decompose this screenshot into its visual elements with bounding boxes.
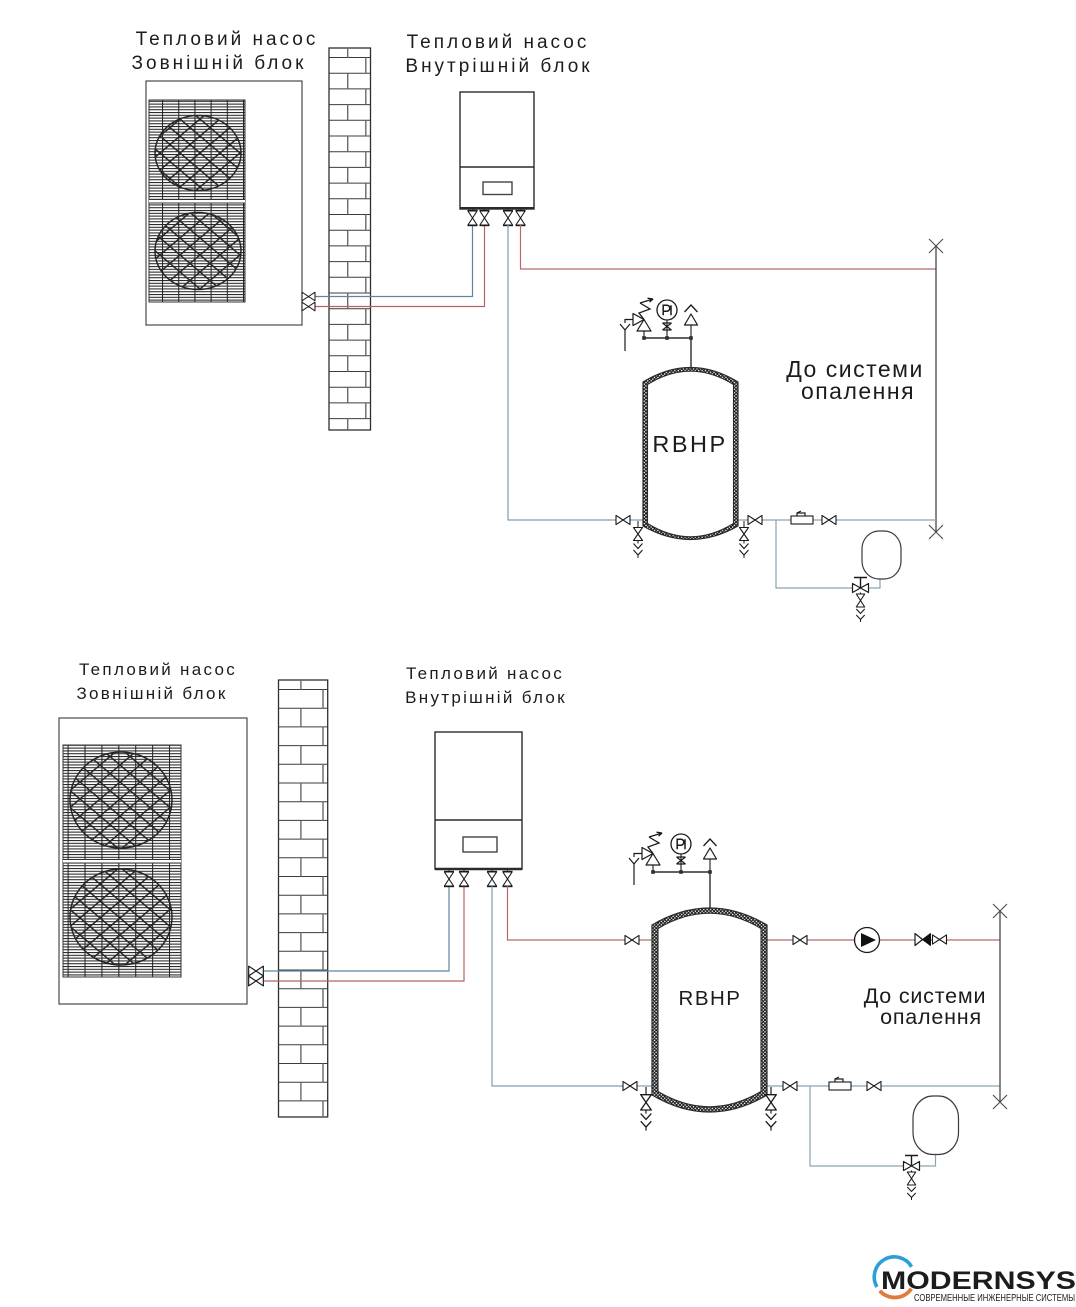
svg-text:RBHP: RBHP: [679, 987, 742, 1010]
svg-text:Внутрішній блок: Внутрішній блок: [405, 56, 592, 77]
svg-text:Зовнішній блок: Зовнішній блок: [76, 684, 227, 703]
svg-text:MODERNSYS: MODERNSYS: [881, 1267, 1076, 1295]
svg-text:RBHP: RBHP: [652, 431, 727, 457]
svg-text:Зовнішній блок: Зовнішній блок: [132, 53, 307, 74]
svg-text:СОВРЕМЕННЫЕ ИНЖЕНЕРНЫЕ СИСТЕ: СОВРЕМЕННЫЕ ИНЖЕНЕРНЫЕ СИСТЕМЫ: [914, 1293, 1075, 1302]
svg-text:Тепловий насос: Тепловий насос: [79, 660, 237, 679]
svg-text:Тепловий насос: Тепловий насос: [136, 29, 319, 50]
svg-text:Тепловий насос: Тепловий насос: [406, 664, 564, 683]
svg-text:опалення: опалення: [801, 378, 915, 404]
svg-text:Внутрішній блок: Внутрішній блок: [405, 688, 567, 707]
svg-text:опалення: опалення: [880, 1005, 982, 1029]
svg-text:Тепловий насос: Тепловий насос: [407, 32, 590, 53]
